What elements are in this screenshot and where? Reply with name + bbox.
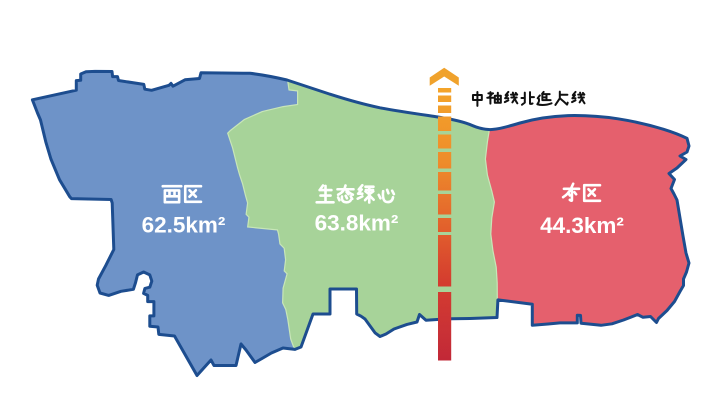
svg-text:44.3km²: 44.3km² [540, 213, 624, 238]
svg-text:63.8km²: 63.8km² [315, 211, 399, 236]
svg-text:62.5km²: 62.5km² [142, 213, 226, 238]
